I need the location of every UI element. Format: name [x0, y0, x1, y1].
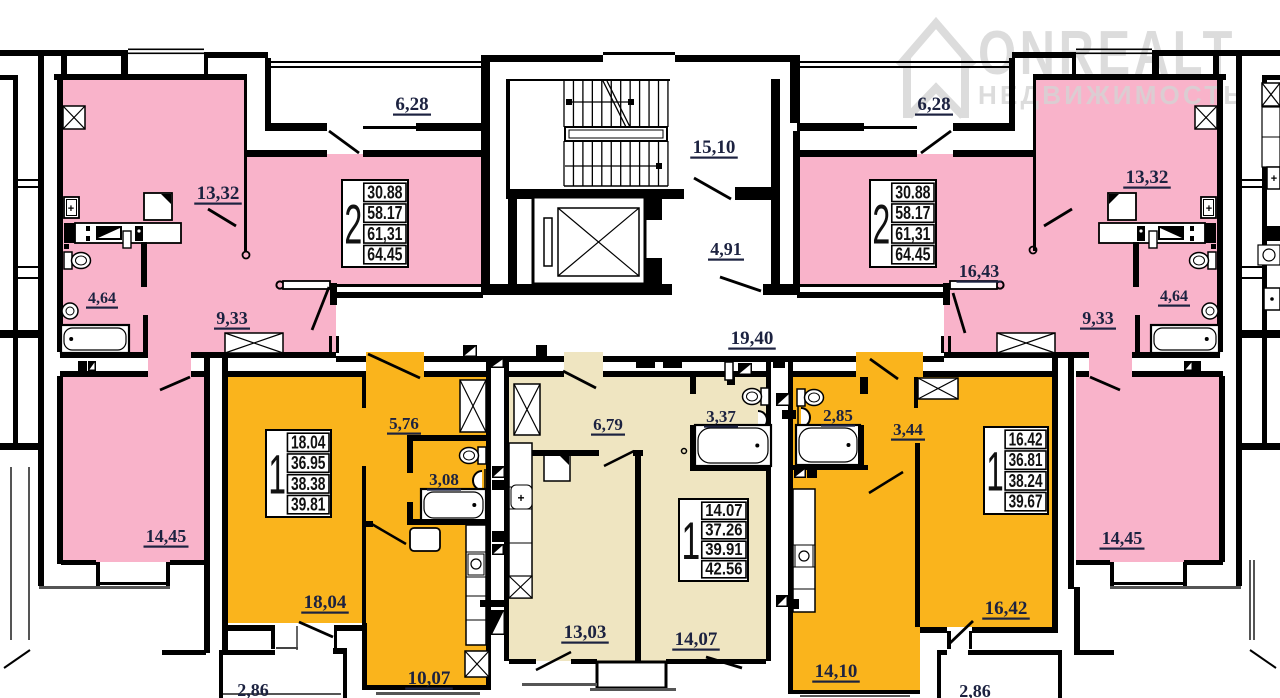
- svg-text:16.42: 16.42: [1009, 428, 1043, 449]
- svg-text:+: +: [1206, 203, 1212, 215]
- svg-text:3,37: 3,37: [706, 407, 736, 426]
- svg-text:38.24: 38.24: [1009, 470, 1044, 491]
- svg-text:64.45: 64.45: [367, 244, 402, 265]
- svg-text:64.45: 64.45: [895, 244, 930, 265]
- svg-text:9,33: 9,33: [1082, 308, 1114, 328]
- svg-text:+: +: [68, 203, 74, 215]
- svg-text:39.67: 39.67: [1009, 491, 1043, 512]
- svg-text:6,28: 6,28: [917, 94, 950, 115]
- svg-text:58.17: 58.17: [367, 202, 402, 223]
- svg-text:14,45: 14,45: [146, 526, 187, 546]
- svg-text:16,42: 16,42: [985, 598, 1028, 619]
- svg-text:14.07: 14.07: [705, 500, 742, 520]
- svg-text:3,08: 3,08: [429, 470, 459, 489]
- svg-text:9,33: 9,33: [216, 308, 248, 328]
- svg-text:10,07: 10,07: [408, 668, 451, 689]
- svg-text:6,28: 6,28: [395, 94, 428, 115]
- svg-text:36.95: 36.95: [291, 452, 326, 473]
- svg-text:3,44: 3,44: [893, 420, 923, 439]
- svg-text:4,91: 4,91: [710, 239, 742, 259]
- svg-text:5,76: 5,76: [389, 414, 419, 433]
- svg-text:39.81: 39.81: [291, 494, 326, 515]
- svg-text:19,40: 19,40: [731, 328, 774, 349]
- svg-text:13,03: 13,03: [564, 622, 607, 643]
- svg-text:6,79: 6,79: [593, 415, 623, 434]
- svg-text:1: 1: [682, 512, 701, 571]
- svg-text:13,32: 13,32: [197, 183, 240, 204]
- svg-text:42.56: 42.56: [705, 559, 742, 579]
- svg-text:+: +: [1271, 173, 1277, 185]
- svg-text:4,64: 4,64: [1160, 288, 1188, 305]
- svg-text:2,86: 2,86: [237, 680, 269, 698]
- svg-text:15,10: 15,10: [693, 137, 736, 158]
- svg-text:18.04: 18.04: [291, 431, 326, 452]
- svg-text:4,64: 4,64: [88, 290, 116, 307]
- svg-text:13,32: 13,32: [1126, 167, 1169, 188]
- svg-text:37.26: 37.26: [705, 520, 742, 540]
- svg-text:14,10: 14,10: [815, 661, 858, 682]
- svg-text:30.88: 30.88: [367, 181, 402, 202]
- svg-text:58.17: 58.17: [895, 202, 930, 223]
- svg-text:38.38: 38.38: [291, 473, 326, 494]
- svg-text:16,43: 16,43: [959, 261, 1000, 281]
- svg-text:2: 2: [344, 194, 362, 256]
- svg-text:36.81: 36.81: [1009, 449, 1043, 470]
- svg-text:2: 2: [872, 194, 890, 256]
- svg-text:2,86: 2,86: [959, 681, 991, 698]
- svg-text:14,07: 14,07: [675, 629, 718, 650]
- svg-text:2,85: 2,85: [823, 406, 853, 425]
- svg-text:1: 1: [986, 441, 1003, 503]
- svg-text:39.91: 39.91: [705, 539, 743, 559]
- svg-text:61,31: 61,31: [895, 223, 930, 244]
- svg-text:18,04: 18,04: [304, 592, 347, 613]
- svg-text:+: +: [517, 491, 524, 505]
- svg-text:1: 1: [268, 444, 286, 506]
- svg-text:14,45: 14,45: [1102, 528, 1143, 548]
- svg-text:61,31: 61,31: [367, 223, 402, 244]
- svg-text:30.88: 30.88: [895, 181, 930, 202]
